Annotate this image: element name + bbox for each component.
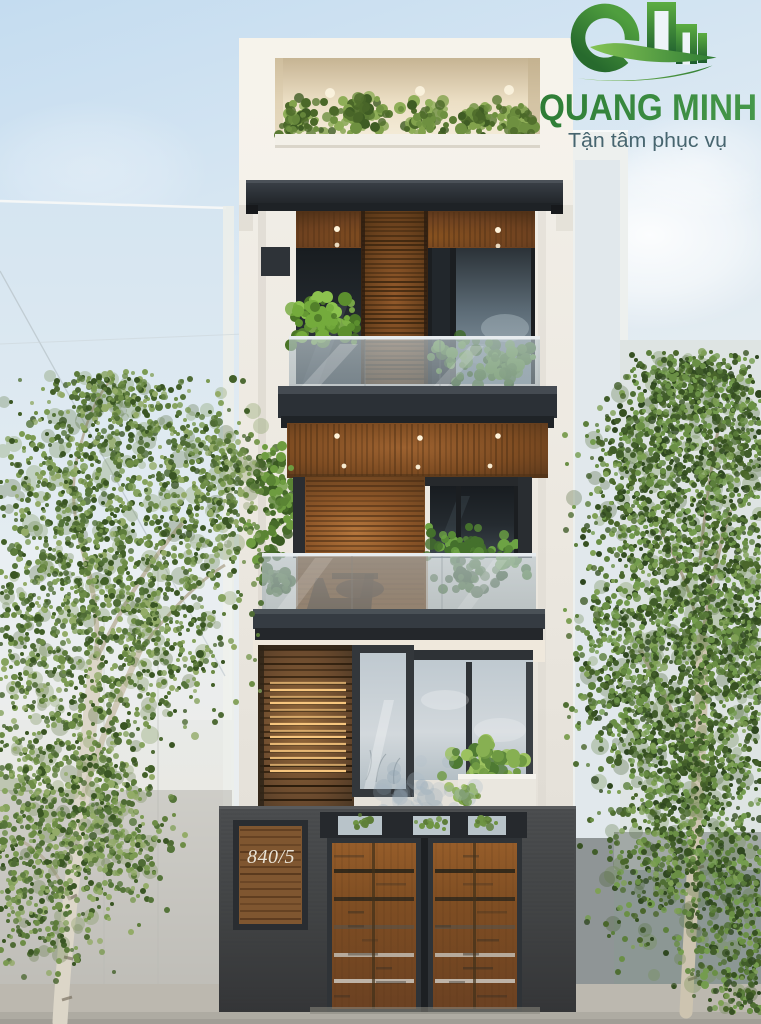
svg-text:840/5: 840/5 — [247, 846, 295, 868]
